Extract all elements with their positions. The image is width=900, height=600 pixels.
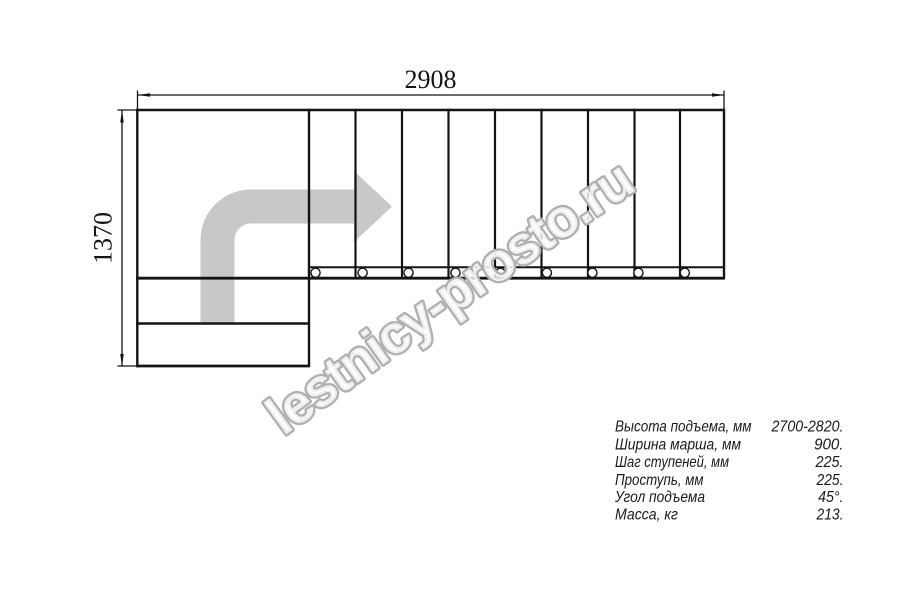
svg-text:225.: 225. [815,454,844,471]
svg-text:Шаг ступеней, мм: Шаг ступеней, мм [615,454,729,471]
svg-text:Проступь, мм: Проступь, мм [615,472,704,489]
svg-text:Масса, кг: Масса, кг [615,507,678,524]
svg-text:1370: 1370 [89,212,118,264]
svg-text:45°.: 45°. [818,489,843,506]
svg-text:Высота подъема, мм: Высота подъема, мм [615,419,752,436]
svg-text:225.: 225. [816,472,844,489]
svg-text:Ширина марша, мм: Ширина марша, мм [615,436,741,453]
svg-text:2700-2820.: 2700-2820. [771,419,844,436]
svg-text:213.: 213. [816,507,844,524]
svg-text:2908: 2908 [405,65,457,94]
svg-text:Угол подъема: Угол подъема [614,489,705,506]
svg-text:900.: 900. [814,436,843,453]
